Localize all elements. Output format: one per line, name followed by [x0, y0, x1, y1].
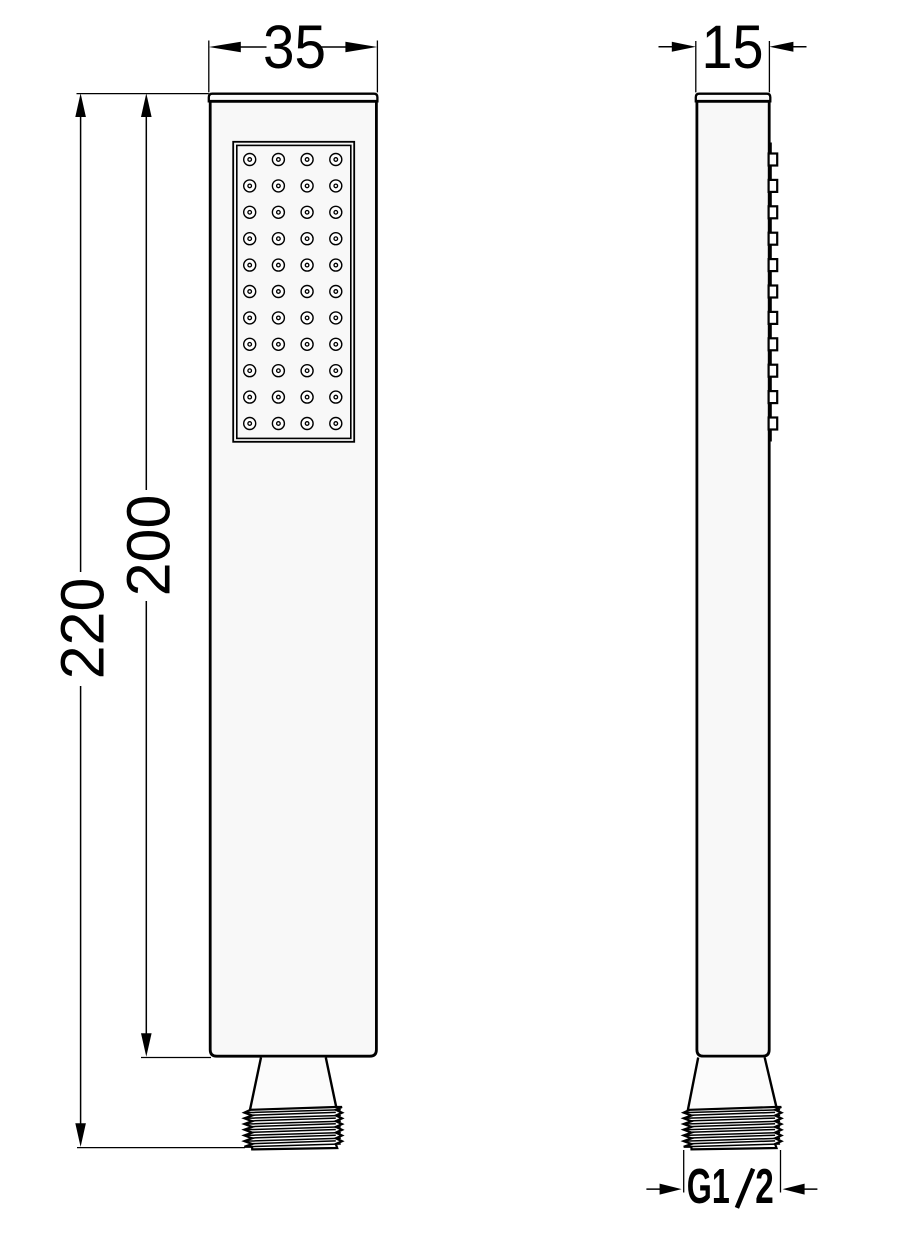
svg-text:2: 2	[755, 1160, 774, 1214]
svg-text:200: 200	[114, 495, 182, 597]
svg-text:35: 35	[263, 13, 326, 81]
svg-text:G1: G1	[687, 1160, 730, 1214]
svg-text:220: 220	[49, 578, 117, 680]
svg-text:15: 15	[702, 13, 764, 81]
